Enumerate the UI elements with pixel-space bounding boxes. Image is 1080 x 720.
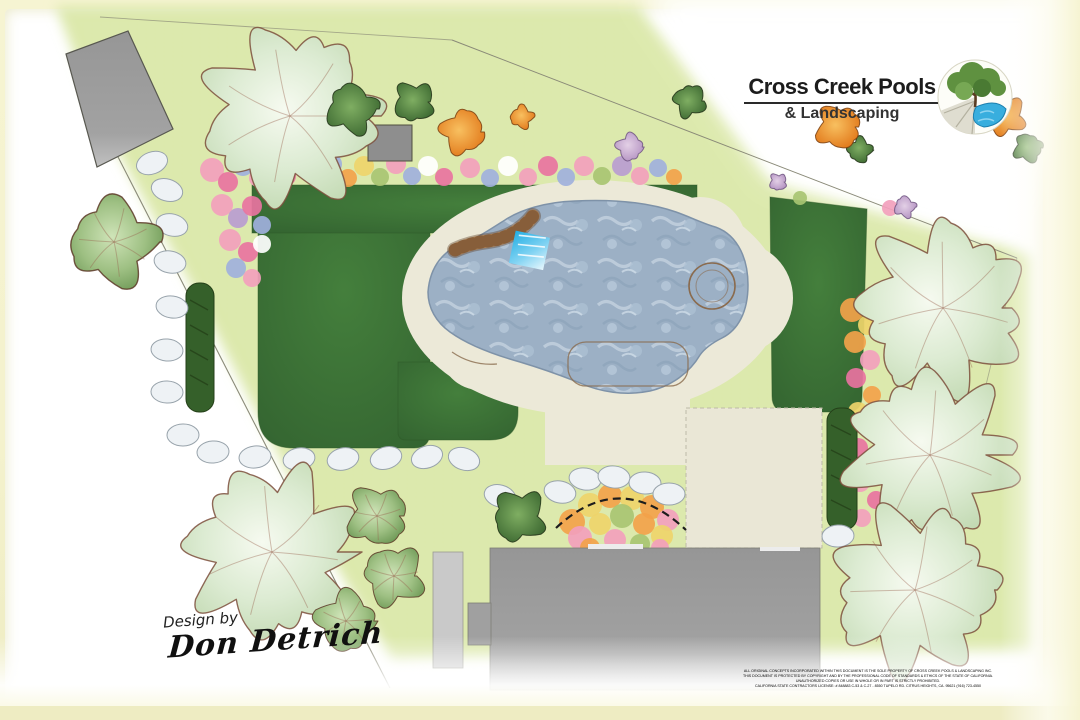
flower-cluster [460,158,480,178]
stepping-stone [150,338,184,363]
company-logo: Cross Creek Pools & Landscaping [744,74,940,123]
flower-cluster [589,513,611,535]
patio [686,408,822,548]
flower-cluster [218,172,238,192]
flower-cluster [226,258,246,278]
stepping-stone [196,440,229,464]
flower-cluster [649,159,667,177]
flower-cluster [574,156,594,176]
stepping-stone [167,424,199,447]
flower-cluster [519,168,537,186]
flower-cluster [846,368,866,388]
flower-cluster [610,504,634,528]
flower-cluster [253,235,271,253]
flower-cluster [242,196,262,216]
patio-door [760,547,800,551]
flower-cluster [844,331,866,353]
flower-cluster [418,156,438,176]
flower-cluster [860,350,880,370]
flower-cluster [243,269,261,287]
flower-cluster [435,168,453,186]
flower-cluster [793,191,807,205]
flower-cluster [498,156,518,176]
stepping-stone [155,294,190,320]
copyright-notice: ALL ORIGINAL CONCEPTS INCORPORATED WITHI… [700,669,1036,689]
tree [770,174,787,190]
tree [495,492,545,542]
flower-cluster [371,168,389,186]
flower-cluster [481,169,499,187]
company-tagline: & Landscaping [744,105,940,123]
flower-cluster [631,167,649,185]
flower-cluster [593,167,611,185]
flower-cluster [219,229,241,251]
flower-cluster [403,167,421,185]
patio-door [588,544,643,549]
flower-cluster [538,156,558,176]
flower-cluster [253,216,271,234]
flower-cluster [633,513,655,535]
stepping-stone [151,380,184,403]
tree [395,83,434,121]
tree [347,488,405,544]
flower-cluster [666,169,682,185]
tree-over-pond-and-path-logo-icon [934,55,1016,139]
flower-cluster [557,168,575,186]
stepping-stone [653,483,685,505]
company-name: Cross Creek Pools [744,74,940,104]
copyright-line-4: CALIFORNIA STATE CONTRACTORS LICENSE: # … [700,684,1036,689]
